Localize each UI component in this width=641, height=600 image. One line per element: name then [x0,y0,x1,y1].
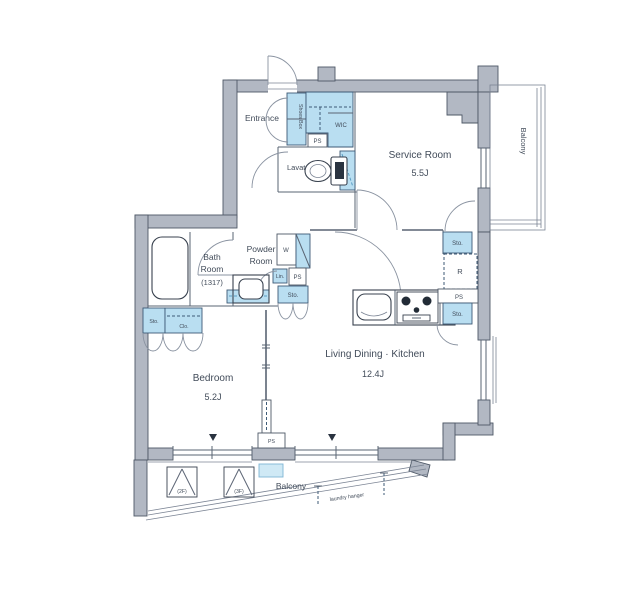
floor-plan: Balcony Entrance Shoes Box WIC PS Lavato… [0,0,641,600]
sto-kitchen-top-label: Sto. [452,241,463,247]
right-balcony-label: Balcony [519,128,528,155]
svg-text:(1317): (1317) [201,278,223,287]
shoes-box-label: Shoes Box [297,104,303,129]
washbasin-icon [227,275,269,303]
ps-kitchen-label: PS [455,295,463,301]
entrance-door [268,56,297,93]
service-door-arc [357,190,397,230]
ldk-label: Living Dining · Kitchen [325,349,425,360]
entrance-area: Entrance Shoes Box WIC PS [245,92,353,147]
service-room-label: Service Room [389,150,452,161]
hatch-3f-label: (3F) [234,489,244,495]
lavatory-door-arc [252,152,288,188]
washer-label: W [283,248,289,254]
east-window [478,336,496,404]
bathtub-icon [152,237,188,299]
living-dining-kitchen: Living Dining · Kitchen 12.4J Sto. R PS … [325,201,478,379]
service-balcony-door [478,148,490,188]
svg-text:Room: Room [201,264,224,274]
linen-label: Lin. [276,274,284,280]
ldk-door-arc [335,232,401,298]
bedroom: Bedroom 5.2J [193,373,234,402]
balcony-step [259,464,283,477]
storage-door-arc [437,324,458,345]
laundry-hanger-label: laundry hanger [329,492,364,503]
ldk-size: 12.4J [362,369,384,379]
bath-room-label: Bath [203,252,221,262]
toilet-icon [305,151,355,190]
sto-kitchen-bottom-label: Sto. [452,312,463,318]
sto-powder-label: Sto. [288,293,299,299]
floor-plan-drawing: Balcony Entrance Shoes Box WIC PS Lavato… [0,0,641,600]
bedroom-label: Bedroom [193,373,234,384]
bottom-balcony-label: Balcony [276,481,307,491]
bedroom-closet: Sto. Clo. [143,308,203,351]
window-marker [209,434,217,441]
laundry-hanger: laundry hanger [314,473,388,506]
entrance-label: Entrance [245,113,279,123]
powder-room-label: Powder [247,244,276,254]
room-partition: PS [258,310,285,448]
hatch-2f-label: (2F) [177,489,187,495]
escape-hatch-2f: (2F) [167,467,197,497]
bottom-balcony: (2F) (3F) Balcony laundry hanger [146,462,428,520]
svg-text:Room: Room [250,256,273,266]
storage-door-arc [445,201,475,231]
bedroom-size: 5.2J [204,392,221,402]
fridge-label: R [457,267,463,276]
closet-label: Clo. [179,324,188,330]
ps-partition-label: PS [268,439,275,445]
wic-label: WIC [335,123,347,129]
ps-powder-label: PS [293,275,301,281]
sto-closet-label: Sto. [149,319,158,325]
shoes-door-arc [266,120,288,142]
window-marker [328,434,336,441]
service-room-size: 5.5J [411,168,428,178]
escape-hatch-3f: (3F) [224,467,254,497]
ps-entrance-label: PS [313,139,321,145]
